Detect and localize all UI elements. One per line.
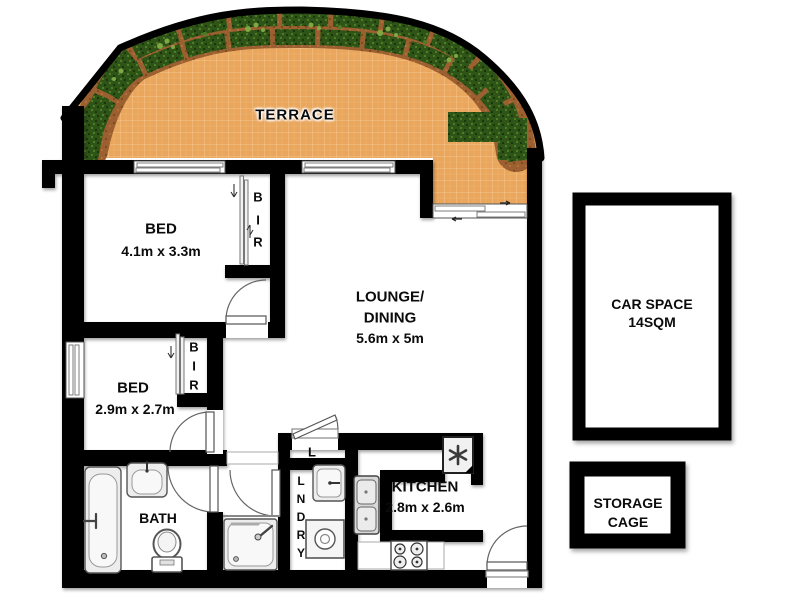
bir2-sliding-door bbox=[168, 334, 184, 394]
bed2-dims: 2.9m x 2.7m bbox=[95, 402, 174, 416]
lounge-label-line2: DINING bbox=[364, 311, 417, 326]
storage-label-line2: CAGE bbox=[608, 515, 648, 529]
terrace-label: TERRACE bbox=[255, 108, 335, 123]
bir1-letter-b: B bbox=[253, 191, 262, 204]
bath-label: BATH bbox=[139, 511, 177, 525]
carspace-label: CAR SPACE bbox=[611, 297, 692, 311]
bed2-label: BED bbox=[117, 381, 149, 396]
bath-sink-icon bbox=[127, 462, 167, 497]
bir1-letter-i: I bbox=[256, 214, 260, 227]
bathtub-icon bbox=[84, 467, 121, 573]
cooktop-icon bbox=[358, 541, 444, 570]
lounge-dims: 5.6m x 5m bbox=[356, 331, 424, 345]
bed1-door bbox=[226, 280, 266, 324]
laundry-pivot-door bbox=[292, 415, 338, 439]
bed1-dims: 4.1m x 3.3m bbox=[121, 244, 200, 258]
lounge-window bbox=[302, 161, 395, 173]
washing-machine-icon bbox=[306, 520, 344, 558]
entry-door bbox=[486, 526, 528, 577]
bir1-letter-r: R bbox=[253, 236, 262, 249]
laundry-letter-n: N bbox=[297, 493, 306, 505]
laundry-letter-r: R bbox=[297, 529, 306, 541]
bath-door bbox=[168, 466, 218, 512]
laundry-letter-l: L bbox=[297, 475, 304, 487]
bed2-door bbox=[170, 412, 214, 452]
hedge-right-notch bbox=[498, 118, 527, 160]
lounge-label-line1: LOUNGE/ bbox=[356, 290, 424, 305]
storage-label-line1: STORAGE bbox=[594, 496, 663, 510]
toilet-icon bbox=[152, 530, 182, 573]
bir1-sliding-door bbox=[231, 176, 253, 265]
kitchen-label: KITCHEN bbox=[392, 480, 459, 495]
hedge-right-block bbox=[448, 112, 506, 142]
shower-icon bbox=[224, 519, 277, 570]
floor-plan: TERRACE BED 4.1m x 3.3m B I R LOUNGE/ DI… bbox=[0, 0, 800, 600]
laundry-letter-d: D bbox=[297, 511, 306, 523]
bir2-letter-b: B bbox=[189, 341, 198, 354]
hall-shower-door bbox=[230, 470, 280, 516]
bathroom-fixtures bbox=[84, 462, 277, 573]
laundry-tub-icon bbox=[313, 465, 345, 501]
bir2-letter-i: I bbox=[192, 360, 196, 373]
bed2-window bbox=[66, 342, 84, 398]
kitchen-sink-icon bbox=[354, 476, 379, 534]
bed1-label: BED bbox=[145, 222, 177, 237]
kitchen-dims: 2.8m x 2.6m bbox=[385, 500, 464, 514]
laundry-letter-y: Y bbox=[297, 547, 305, 559]
bir2-letter-r: R bbox=[189, 379, 198, 392]
hot-water-unit-icon bbox=[443, 437, 473, 473]
linen-label: L bbox=[308, 446, 316, 459]
carspace-area: 14SQM bbox=[628, 315, 675, 329]
laundry-fixtures bbox=[306, 465, 345, 558]
terrace-sliding-door bbox=[433, 201, 527, 221]
bed1-window bbox=[134, 161, 225, 173]
